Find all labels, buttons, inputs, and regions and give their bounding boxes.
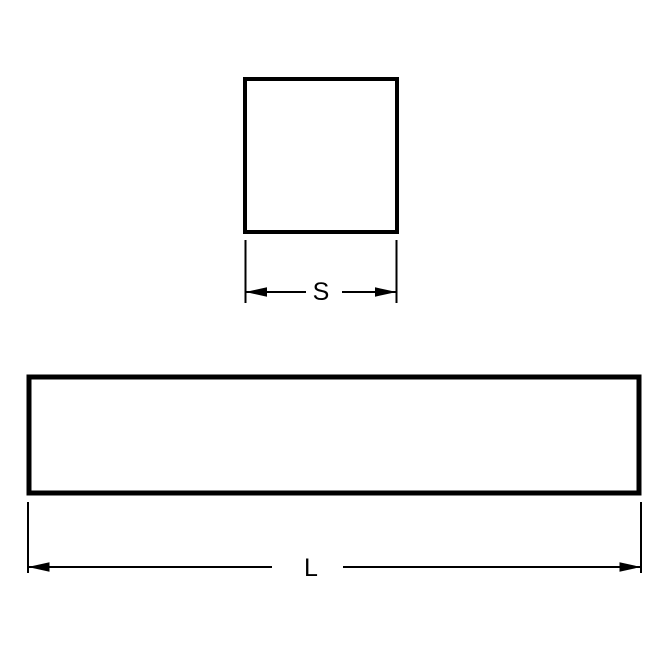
drawing-canvas: S L bbox=[0, 0, 670, 670]
l-dimension-arrow-right-icon bbox=[620, 562, 642, 571]
square-side-dimension-label: S bbox=[313, 278, 330, 306]
square-outline bbox=[245, 79, 397, 232]
length-dimension-label: L bbox=[304, 554, 318, 582]
s-dimension-arrow-left-icon bbox=[246, 287, 268, 296]
l-dimension-arrow-left-icon bbox=[28, 562, 50, 571]
cross-section-view: S bbox=[245, 79, 397, 306]
s-dimension-arrow-right-icon bbox=[375, 287, 397, 296]
keystock-diagram: S L bbox=[0, 0, 670, 670]
bar-outline bbox=[29, 377, 639, 493]
side-view: L bbox=[28, 377, 641, 582]
